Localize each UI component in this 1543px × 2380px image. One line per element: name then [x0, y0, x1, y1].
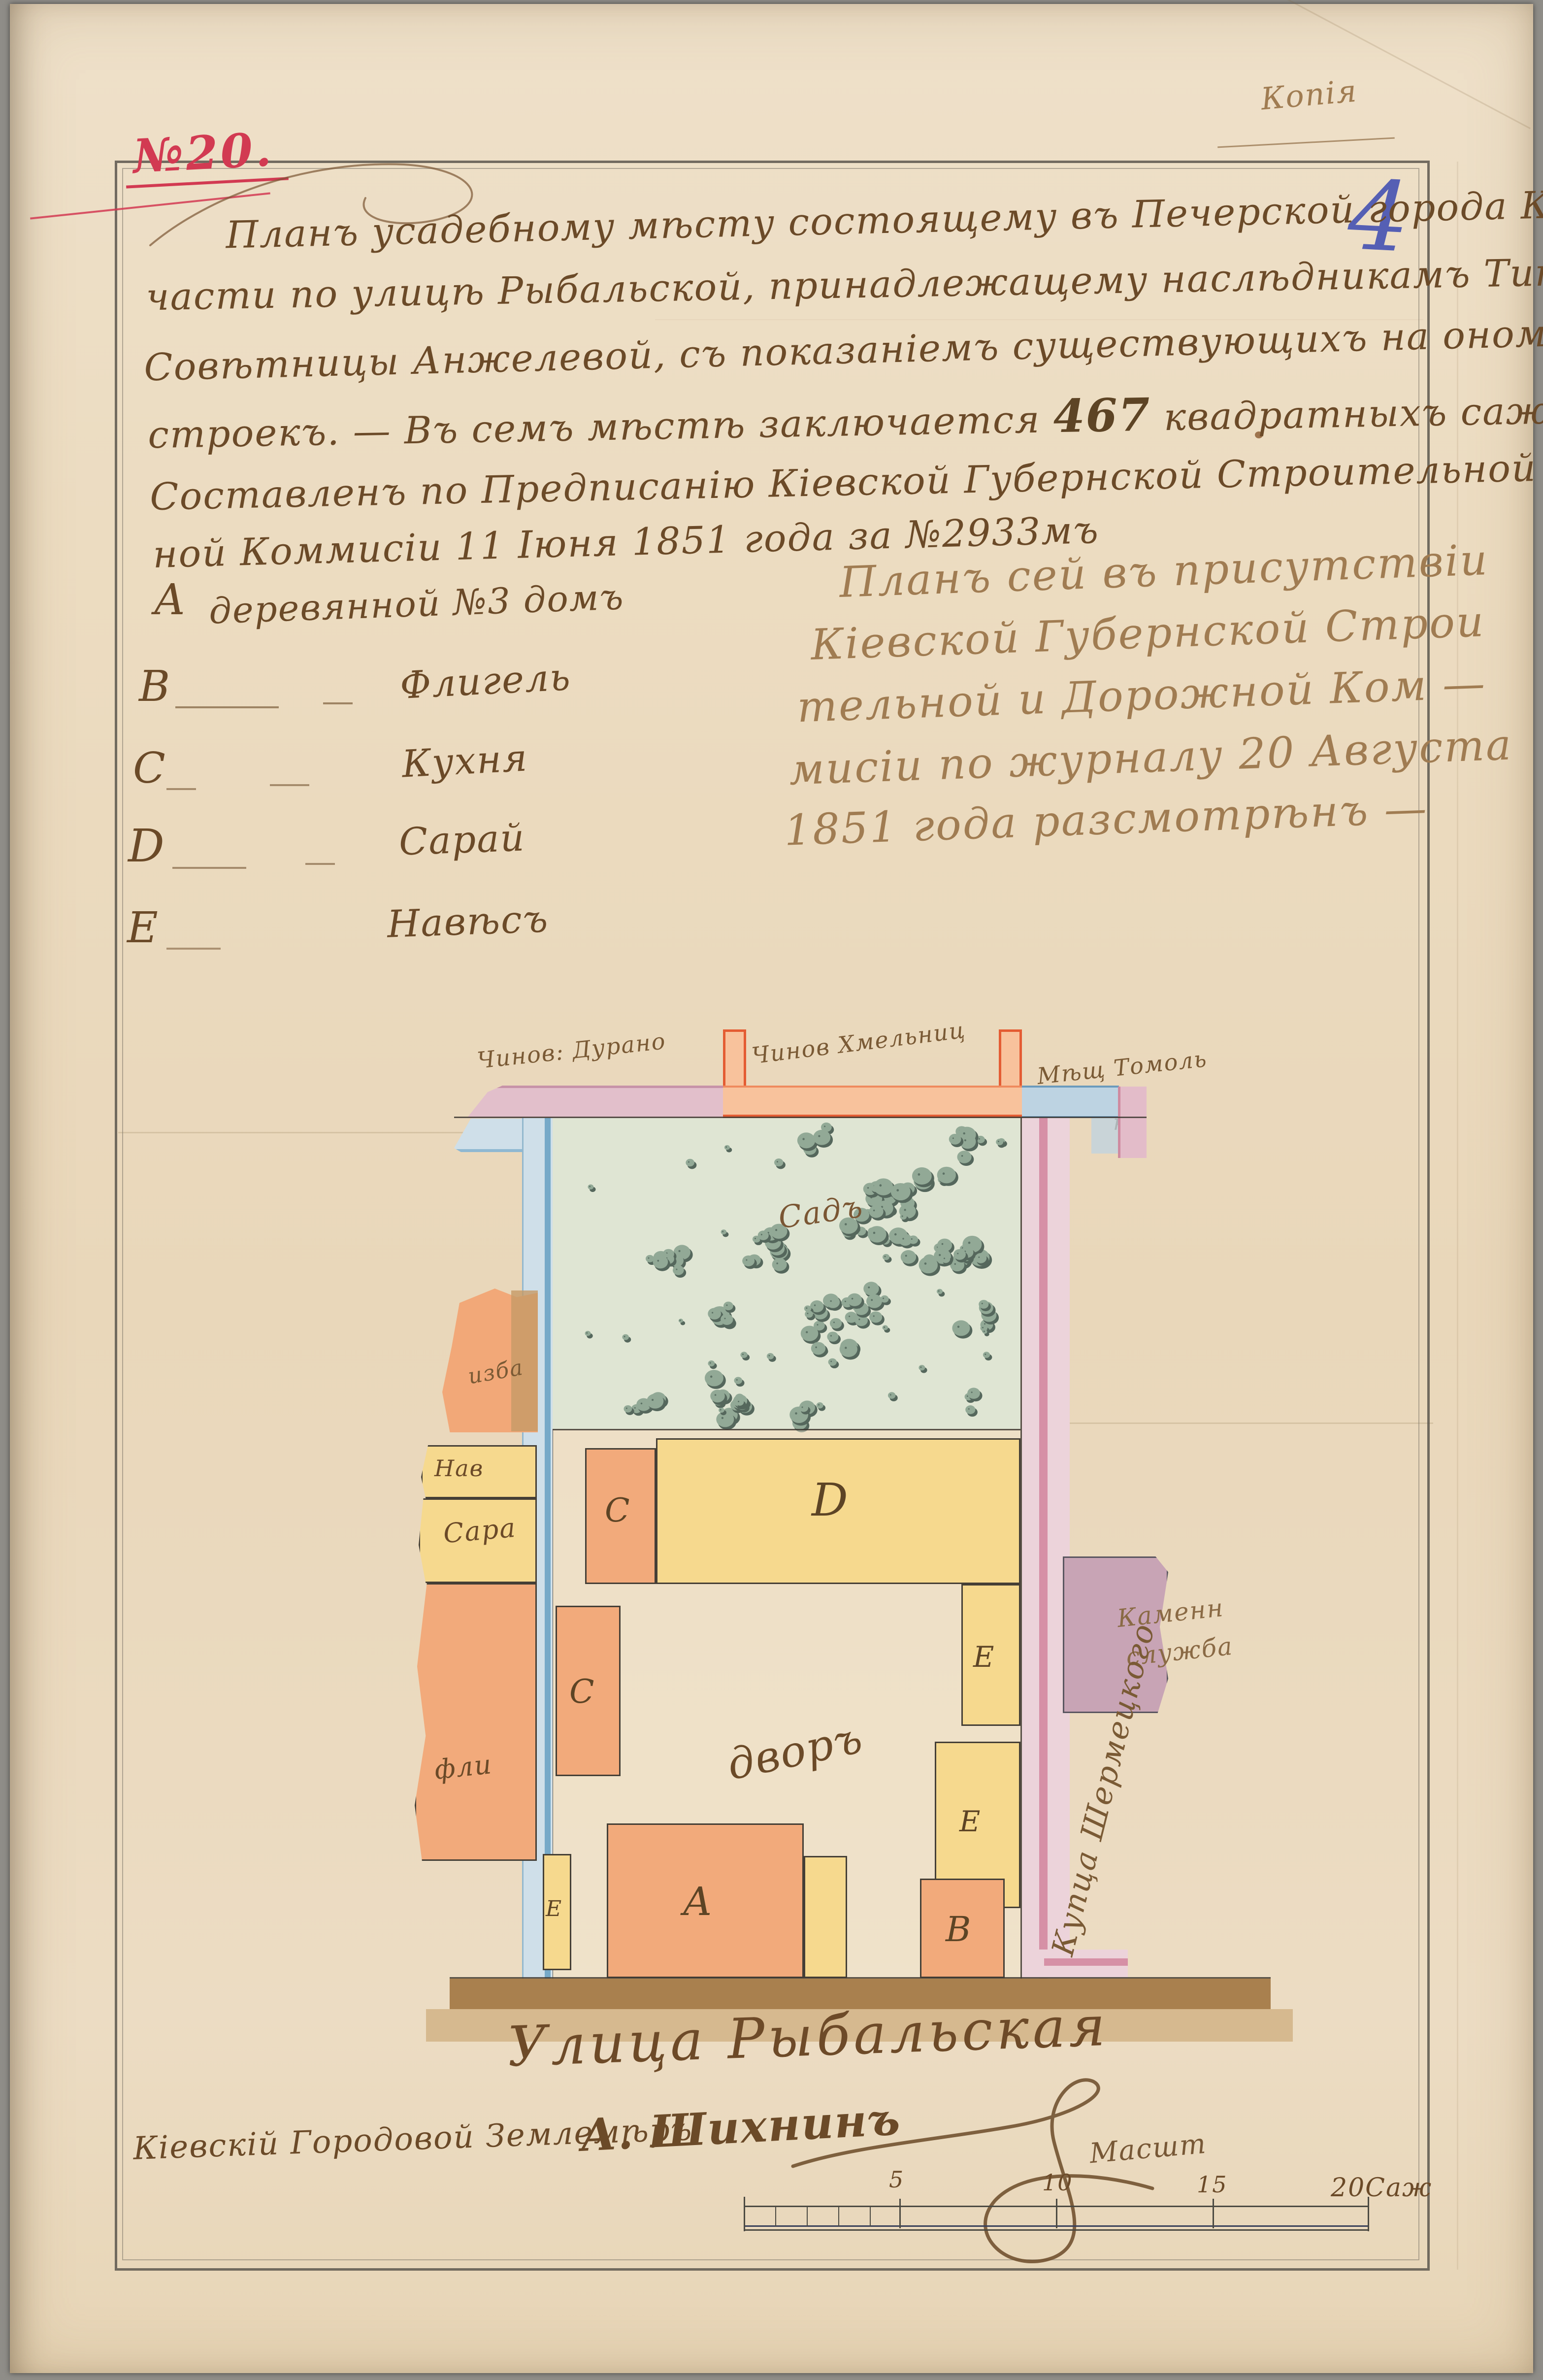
scale-bar-subtick: [870, 2206, 871, 2226]
wall-blue-tail: [1091, 1118, 1119, 1154]
wall-blue-top-right: [1022, 1086, 1119, 1118]
legend-dash: [323, 702, 353, 704]
building-house-a-annex: [804, 1856, 847, 1978]
fragment-shed-label: Сара: [442, 1512, 518, 1550]
garden-bushes: [553, 1118, 1020, 1429]
scale-bar: 5 10 15 20Саж: [744, 2197, 1369, 2236]
scale-bar-tick: [1213, 2199, 1214, 2228]
legend-letter-e: Е: [127, 903, 159, 953]
legend-letter-c: С: [133, 744, 166, 793]
scale-bar-subtick: [807, 2206, 808, 2226]
legend-dash: [270, 784, 309, 786]
legend-dash: [166, 948, 221, 950]
boundary-rose-line: [1039, 1118, 1048, 1979]
legend-label-c: Кухня: [401, 735, 529, 786]
signature-flourish: [778, 2073, 1192, 2270]
building-awning-e1-label: Е: [973, 1640, 995, 1674]
legend-dash: [305, 863, 335, 865]
scale-bar-tick: [1056, 2199, 1057, 2228]
legend-letter-a: А: [154, 575, 187, 625]
legend-label-b: Флигель: [399, 655, 572, 707]
building-house-a-label: А: [683, 1879, 714, 1924]
area-value: 467: [1053, 388, 1151, 443]
fragment-wing-label: фли: [433, 1749, 493, 1785]
scale-tick-label: 5: [889, 2166, 904, 2193]
legend-label-d: Сарай: [398, 816, 526, 864]
legend-label-e: Навѣсъ: [387, 896, 550, 946]
wall-orange-bar: [723, 1086, 1022, 1118]
wall-rose-top-right: [1118, 1087, 1147, 1158]
paper-sheet: Копія 4 №20. Планъ усадебному мѣсту сост…: [10, 4, 1533, 2373]
title-line-4b: квадратныхъ саженъ. —: [1150, 386, 1543, 439]
building-awning-e2-label: Е: [959, 1805, 981, 1838]
copy-note-underline: [1217, 137, 1395, 148]
scale-tick-label: 15: [1197, 2171, 1228, 2198]
garden-area: [553, 1118, 1020, 1429]
scale-tick-label: 20Саж: [1331, 2173, 1432, 2203]
scale-bar-subtick: [838, 2206, 839, 2226]
copy-note: Копія: [1259, 73, 1359, 117]
scanned-document: Копія 4 №20. Планъ усадебному мѣсту сост…: [0, 0, 1543, 2380]
building-wing-b-label: В: [946, 1909, 972, 1950]
building-kitchen-2-label: С: [569, 1673, 595, 1711]
legend-letter-b: В: [139, 662, 171, 711]
boundary-blue-line: [545, 1118, 551, 1979]
building-awning-e3-label: Е: [546, 1896, 562, 1921]
legend-dash: [175, 706, 279, 708]
legend-letter-d: D: [128, 820, 165, 872]
legend-dash: [166, 788, 196, 790]
scale-bar-tick: [899, 2199, 901, 2228]
scale-bar-subtick: [775, 2206, 776, 2226]
legend-dash: [172, 867, 246, 869]
fragment-awning-label: Нав: [434, 1455, 484, 1482]
building-shed-d-label: D: [812, 1474, 849, 1526]
wall-pink-top: [467, 1086, 723, 1118]
scale-bar-tick: [744, 2197, 745, 2231]
scale-bar-tick: [1368, 2197, 1369, 2231]
scale-bar-line: [744, 2229, 1369, 2231]
building-kitchen-1-label: С: [605, 1491, 631, 1529]
scale-tick-label: 10: [1042, 2169, 1073, 2196]
fragment-wing: [415, 1583, 537, 1861]
